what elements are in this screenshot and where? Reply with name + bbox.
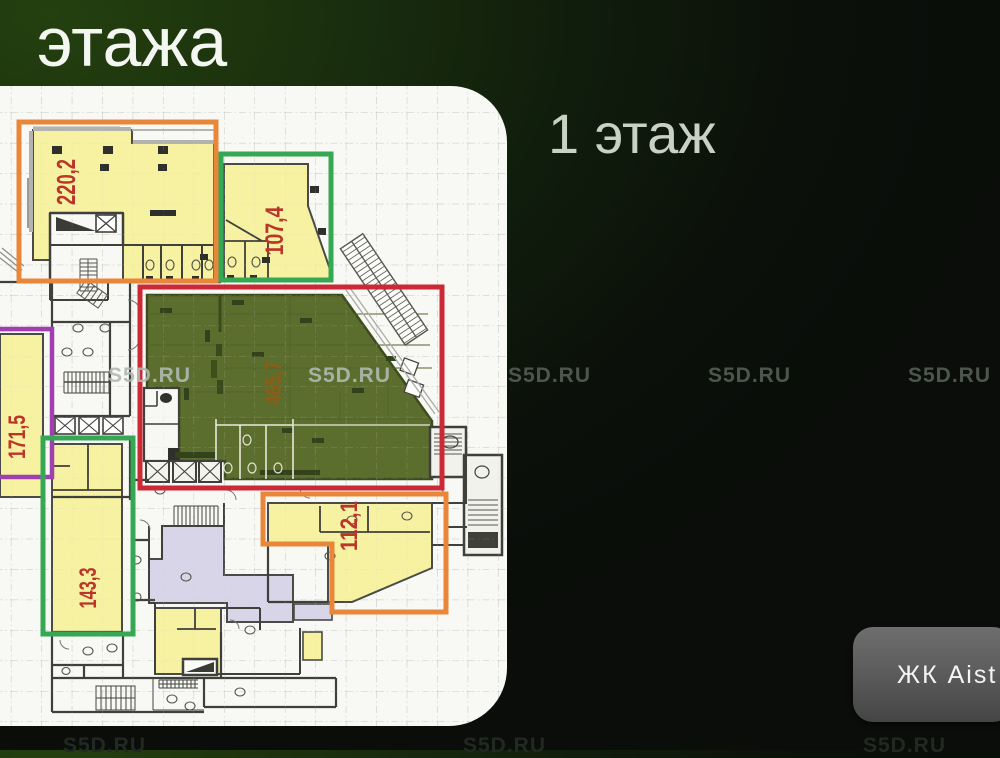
svg-text:107,4: 107,4 bbox=[261, 206, 289, 255]
svg-text:220,2: 220,2 bbox=[51, 159, 81, 205]
svg-text:143,3: 143,3 bbox=[75, 568, 102, 609]
svg-text:112,1: 112,1 bbox=[336, 501, 363, 551]
svg-text:171,5: 171,5 bbox=[4, 415, 31, 459]
svg-text:465,7: 465,7 bbox=[260, 361, 286, 405]
